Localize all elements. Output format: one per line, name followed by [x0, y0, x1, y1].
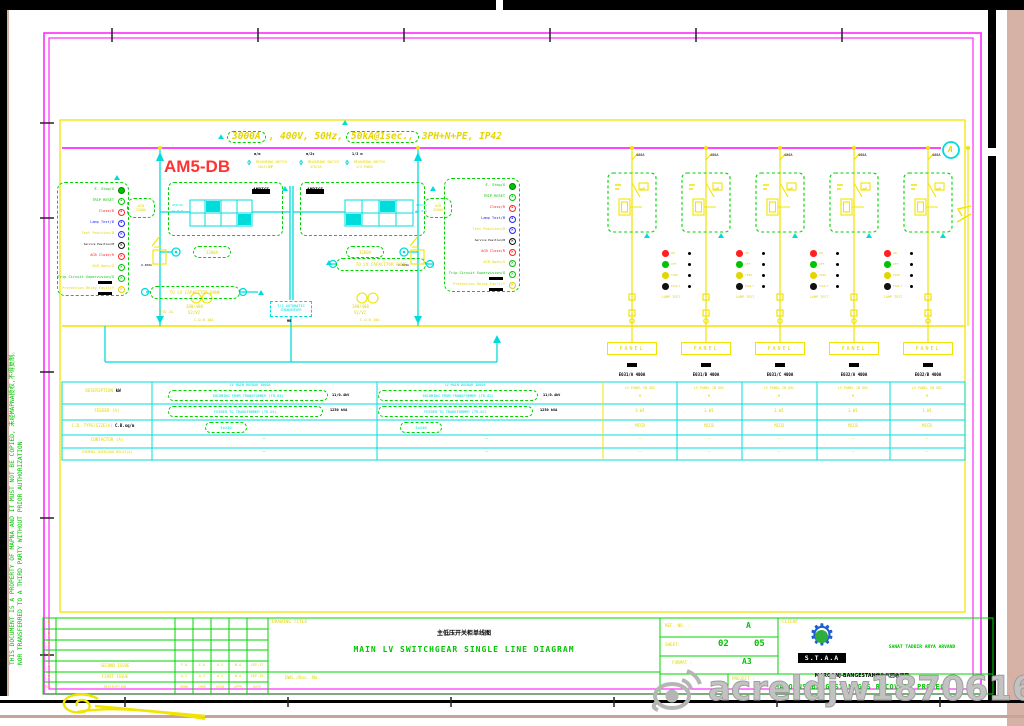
rev-cell: A.Y	[181, 675, 188, 679]
rev-header: DRWN	[180, 686, 188, 689]
legend-row: ACB Open/G✕	[445, 258, 519, 269]
rev-date: SEP.17	[251, 664, 264, 668]
schedule-bubble: 3x240	[205, 422, 247, 433]
legend-row: Lamp Test/B•	[58, 218, 128, 229]
changeover-box: I/2 AUTOMATIC CHANGEOVER	[270, 301, 312, 317]
fcol-r1b: M	[708, 395, 710, 398]
dash: —	[639, 438, 642, 443]
lamp-icon-red-ring: •	[509, 205, 517, 213]
sheet-label: SHEET:	[665, 643, 680, 647]
rev-cell: F.K	[181, 664, 188, 668]
format-value: A3	[742, 658, 752, 666]
label-underbar	[98, 292, 112, 295]
feeder-tag-bar	[775, 363, 785, 367]
dash: —	[708, 451, 711, 456]
capacitor-label: TO LV CAPACITOR BANK	[356, 262, 406, 267]
fcol-r3: MCCB	[774, 424, 784, 428]
tx-voltage: 11/0.4kV	[332, 394, 349, 398]
rev-header: APPR	[234, 686, 242, 689]
confidentiality-line1: THIS DOCUMENT IS A PROPERTY OF MAPNA AND…	[9, 50, 17, 665]
legend-row: ACB Open/G✕	[58, 262, 128, 273]
fcol-r1b: M	[639, 395, 641, 398]
globe-icon	[815, 630, 828, 643]
lamp-icon-red-cross: ✕	[509, 249, 517, 257]
rev-letter: C	[48, 642, 50, 646]
fcol-r3: MCCB	[635, 424, 645, 428]
rev-header: CHKD	[198, 686, 206, 689]
switch1-label2: VOLT/AMP	[258, 166, 273, 169]
lamp-icon-green-cross: ✕	[509, 260, 517, 268]
switch3-icon: Φ	[345, 160, 349, 167]
fcol-r1b: M	[778, 395, 780, 398]
lamp-icon-green-ring: •	[509, 194, 517, 202]
format-label: FORMAT :	[672, 661, 692, 665]
legend-row: Trip Circuit Supervision/G✕	[445, 269, 519, 280]
dash: —	[852, 451, 855, 456]
feeder-name: E031/C 400A	[767, 373, 794, 377]
mb-label: MB	[287, 320, 291, 324]
legend-row: E. Stop/G	[445, 181, 519, 192]
fcol-r2: 3.W1	[704, 409, 714, 413]
acb-rating: 3200A	[136, 208, 146, 212]
lamp-legend-right: E. Stop/G TRIP RESET• Close/R• Lamp Test…	[444, 178, 520, 292]
ref-no-value: A	[746, 622, 751, 630]
legend-row: Trip Circuit Supervision/G✕	[58, 273, 128, 284]
rev-cell: A.Y	[217, 664, 224, 668]
bus-voltage-freq: , 400V, 50Hz,	[269, 132, 343, 142]
lamp-icon-green-cross: ✕	[118, 264, 126, 272]
fcol-r2: 3.W1	[774, 409, 784, 413]
lamp-icon-green-ring: •	[118, 198, 126, 206]
meter-note: CL 0.5	[172, 210, 183, 213]
dash: —	[639, 451, 642, 456]
ct-rating: 3200A	[359, 250, 371, 255]
tx-voltage: 11/0.4kV	[543, 394, 560, 398]
panel-box: PANEL	[829, 342, 879, 355]
legend-row: ACB Close/R✕	[445, 247, 519, 258]
tx-kva: 1250 kVA	[540, 409, 557, 413]
schedule-row-label: DESCRIPTION kW	[85, 389, 120, 393]
feeder-name: E032/B 400A	[915, 373, 942, 377]
capacitor-bubble-left: TO LV CAPACITOR BANK	[150, 286, 240, 299]
dash: —	[778, 451, 781, 456]
label-underbar	[489, 288, 503, 291]
watermark-logo-icon	[648, 666, 702, 712]
feeder-lamp-cluster: ON OFF TRIP FAULT LAMP TEST	[662, 250, 698, 302]
switch1-label1: MEASURING SWITCH	[256, 161, 287, 164]
panel-box: PANEL	[607, 342, 657, 355]
acb-bubble-right: ACB 3200A	[424, 198, 452, 218]
rev-header: DATE	[253, 686, 261, 689]
legend-row: Close/R•	[445, 203, 519, 214]
tx-aux1-right: C.O.B 10A	[360, 319, 379, 323]
tx-taps-left: V2/V2	[188, 311, 200, 315]
cad-drawing-viewport: 3000A , 400V, 50Hz, 50kA@1sec., 3PH+N+PE…	[0, 0, 1024, 726]
rev-header: DESCRIPTION	[104, 686, 126, 689]
bus-descr: LV MAIN BUSBAR 3000A	[230, 384, 271, 387]
feeder-rating: 400A	[636, 154, 644, 158]
ct-bubble-left: 3200A	[193, 246, 231, 258]
schedule-bubble: INCOMING FROM TRANSFORMER (TR-02)	[378, 390, 538, 401]
feeder-lamp-cluster: ON OFF TRIP FAULT LAMP TEST	[884, 250, 920, 302]
schedule-bubble: INCOMING FROM TRANSFORMER (TR-01)	[168, 390, 328, 401]
staa-logo: ⚙ S.T.A.A	[798, 620, 846, 670]
feeder-tag-bar	[923, 363, 933, 367]
tx-taps-right: V2/V2	[354, 311, 366, 315]
schedule-row-label: CONTACTOR (A)	[91, 438, 124, 442]
rev-cell: N.A	[235, 664, 242, 668]
dash: —	[486, 438, 489, 443]
schedule-row-label: THERMAL OVERLOAD RELAY(A)	[81, 451, 132, 454]
lamp-icon-red-cross: ✕	[118, 253, 126, 261]
tx-ratio-right: 380/400	[352, 305, 369, 309]
tx-aux2-left: FTD 2A	[160, 311, 173, 315]
bus-spec-line: 3000A , 400V, 50Hz, 50kA@1sec., 3PH+N+PE…	[218, 131, 502, 143]
border-tick-marks	[40, 28, 940, 707]
rev-cell: A.Y	[199, 675, 206, 679]
dash: —	[263, 451, 266, 456]
tx-ratio-left: 380/400	[186, 305, 203, 309]
incomer-yellow-apparatus	[152, 148, 971, 326]
capacitor-bubble-right: TO LV CAPACITOR BANK	[336, 258, 426, 271]
fcol-r2: 3.W1	[848, 409, 858, 413]
feeder-tag-am5db: AM5-DB	[164, 158, 230, 175]
feeder-lamp-cluster: ON OFF TRIP FAULT LAMP TEST	[810, 250, 846, 302]
legend-row: E. Stop/G	[58, 185, 128, 196]
client-label: CLIENT	[782, 621, 798, 626]
bus-fault-rating: 50kA@1sec.,	[346, 131, 419, 143]
lamp-icon-green-cross: ✕	[509, 271, 517, 279]
feeder-rating: 400A	[932, 154, 940, 158]
feeder-rating: 400A	[784, 154, 792, 158]
tx-kva: 1250 kVA	[330, 409, 347, 413]
bus-current-rating: 3000A	[227, 131, 266, 143]
fcol-r1: LV PANEL IN GRC	[625, 387, 656, 390]
switch1-note: m/m	[254, 153, 260, 157]
lamp-icon-green-cross: ✕	[118, 275, 126, 283]
schedule-bubble: FEEDER TO TRANSFORMER (TR-02)	[378, 406, 533, 417]
feeder-lamp-cluster: ON OFF TRIP FAULT LAMP TEST	[736, 250, 772, 302]
watermark-text: acreldjw18706162527	[708, 669, 1024, 709]
ref-no-label: REF. NO. :	[665, 624, 690, 628]
fcol-r1: LV PANEL IN GRC	[838, 387, 869, 390]
lamp-legend-left: E. Stop/G TRIP RESET• Close/R• Lamp Test…	[57, 182, 129, 296]
signature-scribble	[64, 694, 205, 719]
switch3-label2: 1/3 PHASE	[356, 166, 373, 169]
lamp-icon-yellow-cross: ✕	[118, 286, 126, 294]
watermark: acreldjw18706162527	[648, 666, 1024, 712]
changeover-line2: CHANGEOVER	[271, 308, 311, 312]
switch2-note: m/2s	[306, 153, 314, 157]
fcol-r3: MCCB	[704, 424, 714, 428]
bus-ref-letter: A	[948, 146, 953, 154]
switch2-icon: Φ	[299, 160, 303, 167]
feeder-tag-bar	[701, 363, 711, 367]
rev-header: DSGN	[216, 686, 224, 689]
sheet-value: 02	[718, 640, 729, 649]
revision-triangle-icon	[218, 134, 224, 139]
staa-logo-text: S.T.A.A	[798, 653, 846, 663]
rev-header: REV.	[45, 686, 53, 689]
dash: —	[486, 451, 489, 456]
schedule-row-label: FEEDER (A)	[94, 409, 119, 413]
bus-phase-ip: 3PH+N+PE, IP42	[422, 132, 502, 142]
rev-letter: D	[48, 632, 50, 636]
lamp-icon-blue-ring: •	[118, 220, 126, 228]
fcol-r3: MCCB	[922, 424, 932, 428]
legend-row: Close/R•	[58, 207, 128, 218]
schedule-row-label: C.B. TYPE/SIZE(A) C.B.sq/m	[72, 424, 135, 428]
ct-bubble-right: 3200A	[346, 246, 384, 258]
ct-rating: 3200A	[206, 250, 218, 255]
feeder-rating: 400A	[858, 154, 866, 158]
ct-id: O-400A	[141, 264, 152, 267]
dash: —	[926, 438, 929, 443]
rev-letter: A	[48, 664, 50, 668]
meter-brand-2: AMPICS	[306, 189, 324, 194]
panel-box: PANEL	[755, 342, 805, 355]
lamp-icon-green-solid	[118, 187, 126, 195]
feeder-name: E032/A 400A	[841, 373, 868, 377]
switch3-label1: MEASURING SWITCH	[354, 161, 385, 164]
dash: —	[926, 451, 929, 456]
drawing-title-cn: 主低压开关柜单线图	[437, 631, 491, 637]
lamp-icon-green-solid	[509, 183, 517, 191]
lamp-icon-red-ring: •	[118, 209, 126, 217]
lamp-icon-blue-cross: ✕	[509, 227, 517, 235]
feeder-rating: 400A	[710, 154, 718, 158]
legend-row: Protection Relay Fault/Y✕	[445, 280, 519, 291]
drawing-title-label: DRAWING TITLE	[272, 621, 307, 626]
schedule-bubble: FEEDER TO TRANSFORMER (TR-01)	[168, 406, 323, 417]
rev-date: SEP.16	[251, 675, 264, 679]
meter-brand-1: AMPICS	[252, 189, 270, 194]
lamp-icon-yellow-cross: ✕	[509, 282, 517, 290]
dwg-no-label: DWG./Doc. No.	[285, 677, 320, 682]
acb-bubble-left: ACB 3200A	[127, 198, 155, 218]
sheet-of-value: 05	[754, 640, 765, 649]
legend-row: Lamp Test/B•	[445, 214, 519, 225]
schedule-bubble: 3x240	[400, 422, 442, 433]
lamp-icon-black-cross: ✕	[509, 238, 517, 246]
legend-row: TRIP RESET•	[445, 192, 519, 203]
lamp-icon-blue-ring: •	[509, 216, 517, 224]
panel-box: PANEL	[681, 342, 731, 355]
rev-desc: FIRST ISSUE	[102, 675, 129, 679]
tx-aux1-left: C.O.B 10A	[194, 319, 213, 323]
lamp-icon-black-cross: ✕	[118, 242, 126, 250]
fcol-r2: 3.W1	[635, 409, 645, 413]
switch2-label1: MEASURING SWITCH	[308, 161, 339, 164]
dash: —	[708, 438, 711, 443]
legend-row: Service Position/B✕	[445, 236, 519, 247]
rev-cell: A.Y	[217, 675, 224, 679]
feeder-tag-bar	[627, 363, 637, 367]
feeder-tag-bar	[849, 363, 859, 367]
rev-desc: SECOND ISSUE	[101, 664, 130, 668]
bus-descr: LV MAIN BUSBAR 3000A	[445, 384, 486, 387]
fcol-r1: LV PANEL IN GRC	[764, 387, 795, 390]
capacitor-label: TO LV CAPACITOR BANK	[170, 290, 220, 295]
legend-row: TRIP RESET•	[58, 196, 128, 207]
rev-letter: 0	[48, 675, 50, 679]
lamp-icon-blue-cross: ✕	[118, 231, 126, 239]
sheet-border-magenta	[44, 33, 981, 694]
acb-rating: 3200A	[433, 208, 443, 212]
meter-note: 470/5A	[172, 204, 183, 207]
legend-row: Service Position/B✕	[58, 240, 128, 251]
confidentiality-line2: NOR TRANSFERRED TO A THIRD PARTY WITHOUT…	[17, 50, 25, 665]
switch3-note: 1/3 m	[352, 153, 363, 157]
client-name: SANAT TADBIR ARYA ARVAND	[889, 646, 955, 651]
legend-row: Test Position/B✕	[445, 225, 519, 236]
dash: —	[852, 438, 855, 443]
confidentiality-note: THIS DOCUMENT IS A PROPERTY OF MAPNA AND…	[9, 50, 25, 665]
rev-cell: N.A	[235, 675, 242, 679]
fcol-r1b: M	[926, 395, 928, 398]
legend-row: ACB Close/R✕	[58, 251, 128, 262]
wiring-layer	[0, 0, 1024, 726]
legend-row: Protection Relay Fault/Y✕	[58, 284, 128, 295]
drawing-title-en: MAIN LV SWITCHGEAR SINGLE LINE DIAGRAM	[353, 646, 574, 654]
fcol-r1b: M	[852, 395, 854, 398]
switch1-icon: Φ	[247, 160, 251, 167]
fcol-r3: MCCB	[848, 424, 858, 428]
rev-cell: F.K	[199, 664, 206, 668]
rev-letter: E	[48, 621, 50, 625]
fcol-r1: LV PANEL IN GRC	[912, 387, 943, 390]
dash: —	[263, 438, 266, 443]
dash: —	[778, 438, 781, 443]
fcol-r1: LV PANEL IN GRC	[694, 387, 725, 390]
feeder-name: E031/B 400A	[693, 373, 720, 377]
legend-row: Test Position/B✕	[58, 229, 128, 240]
panel-box: PANEL	[903, 342, 953, 355]
rev-letter: B	[48, 653, 50, 657]
switch2-label2: 470/5A	[310, 166, 322, 169]
fcol-r2: 3.W1	[922, 409, 932, 413]
feeder-name: E031/A 400A	[619, 373, 646, 377]
